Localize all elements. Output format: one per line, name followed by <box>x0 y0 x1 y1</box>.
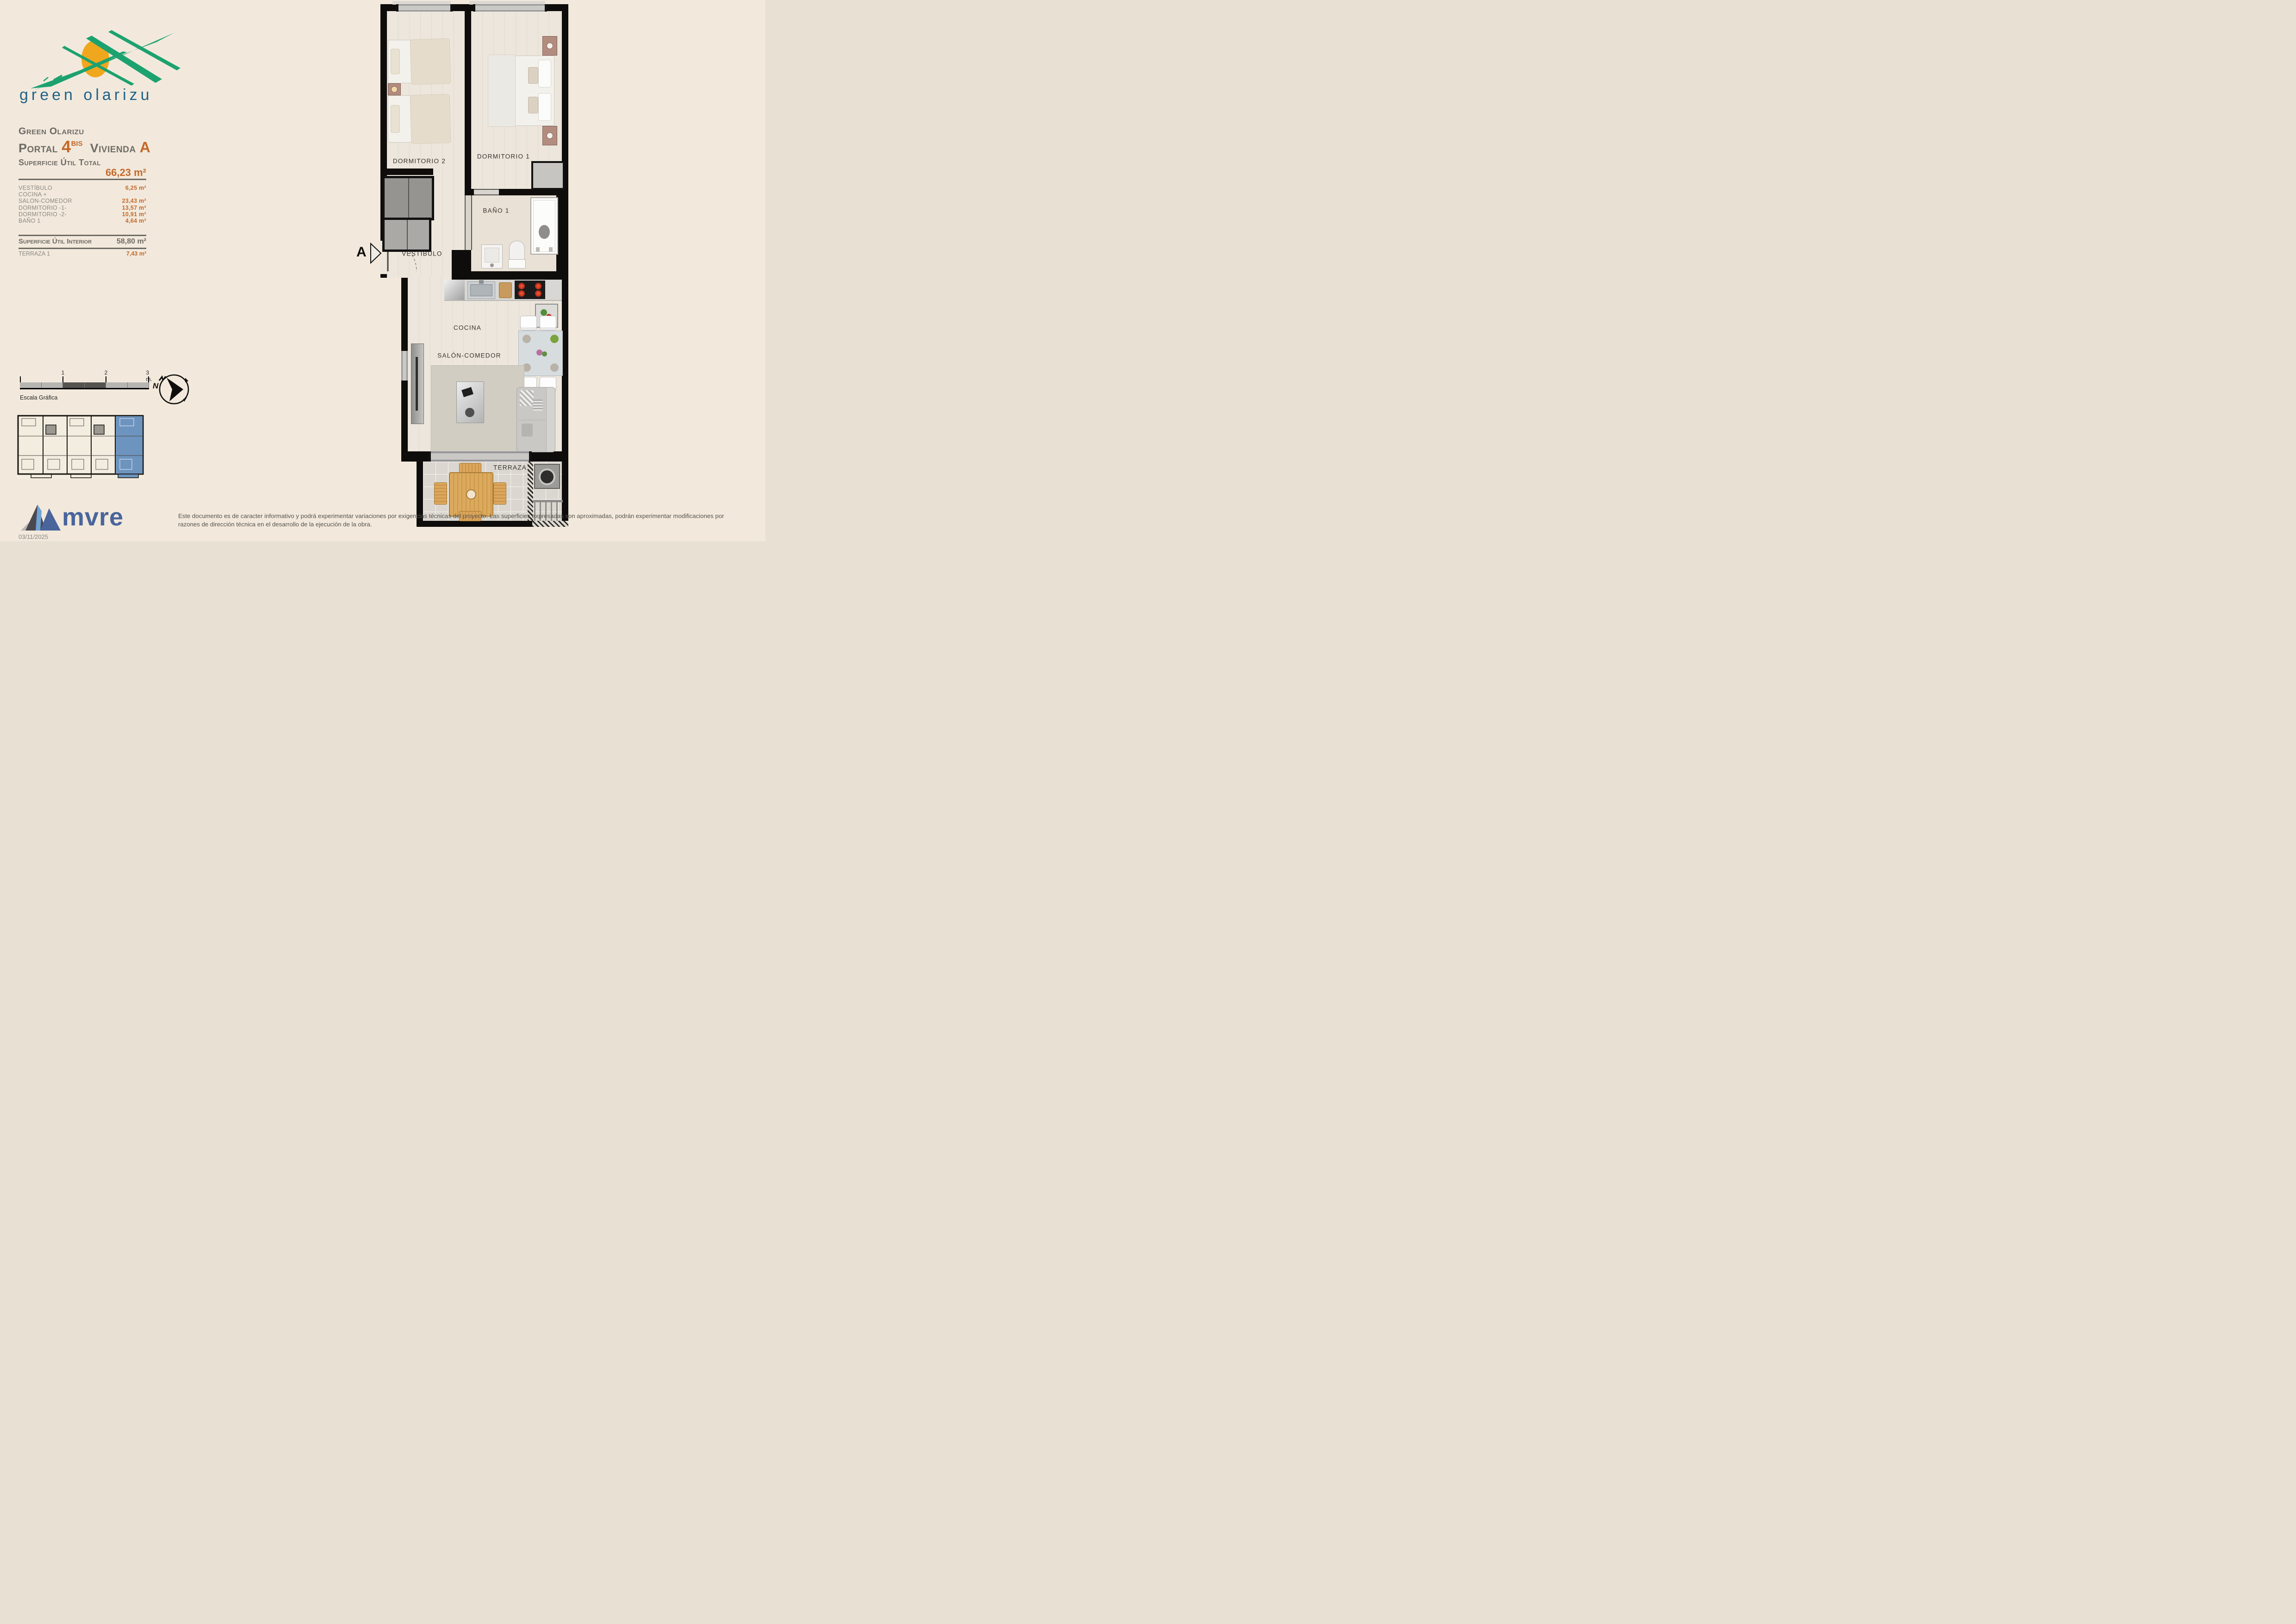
disclaimer-line1: Este documento es de caracter informativ… <box>178 512 762 520</box>
row-value: 6,25 m² <box>125 185 146 191</box>
green-olarizu-logo-mark <box>18 25 190 90</box>
portal-number: 4 <box>62 137 71 156</box>
row-value: 13,57 m² <box>122 205 146 211</box>
area-table: VESTÍBULO6,25 m² COCINA + SALON-COMEDOR2… <box>19 185 146 224</box>
unit-label: Vivienda <box>90 141 136 155</box>
row-label: DORMITORIO -2- <box>19 211 67 218</box>
window-dormitorio1 <box>473 4 547 12</box>
throw-blanket <box>520 390 534 406</box>
table-row: DORMITORIO -2-10,91 m² <box>19 211 146 218</box>
nightstand <box>542 36 557 56</box>
tv-unit <box>411 344 424 424</box>
washing-machine <box>534 464 560 489</box>
total-area-label: Superficie Útil Total <box>19 158 101 168</box>
total-area-value: 66,23 m² <box>19 167 146 179</box>
disclaimer-line2: razones de dirección técnica en el desar… <box>178 520 762 529</box>
row-value: 23,43 m² <box>122 198 146 204</box>
row-label: DORMITORIO -1- <box>19 205 67 211</box>
wall-dorm-divider <box>465 11 471 145</box>
room-label-terraza: TERRAZA <box>493 464 527 471</box>
table-row: COCINA + <box>19 191 146 198</box>
terrace-table <box>449 472 493 517</box>
shower <box>530 197 558 255</box>
table-row: SALON-COMEDOR23,43 m² <box>19 198 146 204</box>
date: 03/11/2025 <box>19 533 48 540</box>
row-value: 4,64 m² <box>125 218 146 224</box>
room-label-bano: BAÑO 1 <box>483 207 509 214</box>
divider <box>19 235 146 236</box>
room-label-dormitorio2: DORMITORIO 2 <box>393 158 446 165</box>
dining-table <box>518 331 563 376</box>
north-compass: N <box>153 369 193 408</box>
table-row: BAÑO 14,64 m² <box>19 218 146 224</box>
interior-value: 58,80 m² <box>117 237 146 246</box>
double-bed <box>489 56 554 126</box>
portal-label: Portal <box>19 141 58 155</box>
unit-title: Portal 4BIS Vivienda A <box>19 137 150 156</box>
divider <box>19 248 146 249</box>
terraza-label: TERRAZA 1 <box>19 250 50 257</box>
window-dormitorio2 <box>396 4 453 12</box>
interior-area-row: Superficie Útil Interior 58,80 m² <box>19 237 146 246</box>
key-plan <box>17 415 144 479</box>
nightstand <box>388 83 401 95</box>
scale-tick-label: 1 <box>62 369 65 376</box>
wardrobe <box>531 161 565 190</box>
terrace-chair <box>434 482 447 505</box>
cooktop <box>515 281 545 299</box>
divider <box>19 179 146 180</box>
mvre-logo-icon <box>20 503 62 531</box>
nightstand <box>542 126 557 145</box>
table-row: VESTÍBULO6,25 m² <box>19 185 146 191</box>
dining-chair <box>540 316 556 331</box>
cutting-board <box>499 282 512 298</box>
graphic-scale: 1 2 3 m. <box>20 369 149 391</box>
disclaimer: Este documento es de caracter informativ… <box>178 512 762 529</box>
page-title: Green Olarizu <box>19 126 84 137</box>
mvre-logo-text: mvre <box>62 505 124 530</box>
scale-caption: Escala Gráfica <box>20 394 57 401</box>
compass-icon <box>153 369 193 408</box>
row-label: SALON-COMEDOR <box>19 198 72 204</box>
room-label-dormitorio1: DORMITORIO 1 <box>477 153 530 160</box>
scale-bar-segments <box>20 382 149 389</box>
single-bed <box>388 95 450 143</box>
row-label: COCINA + <box>19 191 47 198</box>
section-marker-arrow <box>369 243 382 264</box>
wall-bano-cocina <box>471 271 562 280</box>
row-label: BAÑO 1 <box>19 218 41 224</box>
railing <box>533 500 563 502</box>
row-value: 10,91 m² <box>122 211 146 218</box>
dining-chair <box>520 316 537 331</box>
wall-dorm2-vestibulo <box>387 169 433 175</box>
interior-label: Superficie Útil Interior <box>19 237 92 246</box>
section-marker-label: A <box>356 244 367 260</box>
floorplan-sheet: green olarizu Green Olarizu Portal 4BIS … <box>0 0 765 541</box>
single-bed <box>388 40 450 83</box>
closet <box>382 218 431 252</box>
terrace-chair <box>493 482 506 505</box>
row-label: VESTÍBULO <box>19 185 52 191</box>
closet <box>382 176 434 220</box>
north-label: N <box>153 381 158 391</box>
scale-tick-label: 3 m. <box>146 369 152 382</box>
kitchen-sink <box>467 281 495 299</box>
terraza-area-row: TERRAZA 1 7,43 m² <box>19 250 146 257</box>
sofa <box>516 387 555 452</box>
room-label-vestibulo: VESTÍBULO <box>402 250 442 257</box>
terrace-sliding-door <box>428 451 532 462</box>
cushion <box>533 400 543 411</box>
sink <box>481 244 503 269</box>
room-label-salon-comedor: SALÓN-COMEDOR <box>437 352 501 359</box>
green-olarizu-logo-text: green olarizu <box>19 86 153 104</box>
dishwasher <box>444 280 465 300</box>
toilet <box>508 241 525 269</box>
cushion <box>522 424 533 437</box>
kitchen-counter <box>444 280 562 301</box>
portal-suffix: BIS <box>71 140 83 148</box>
glass-partition <box>465 195 472 250</box>
coffee-table <box>456 381 484 423</box>
unit-letter: A <box>140 139 151 156</box>
window-salon <box>401 351 408 381</box>
room-label-cocina: COCINA <box>454 325 481 331</box>
terraza-value: 7,43 m² <box>126 250 146 257</box>
scale-tick-label: 2 <box>105 369 108 376</box>
table-row: DORMITORIO -1-13,57 m² <box>19 205 146 211</box>
window-bano <box>474 189 499 195</box>
